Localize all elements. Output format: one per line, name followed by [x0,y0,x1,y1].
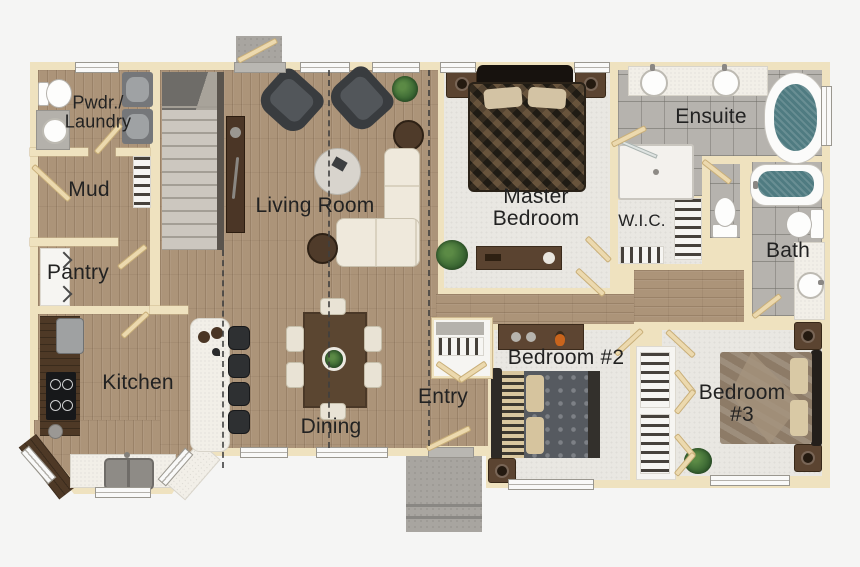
nightstand [794,444,822,472]
kitchen-island [190,318,230,452]
cooktop-icon [46,372,76,420]
dining-table [303,312,367,408]
toilet-icon [810,209,824,239]
pillow [790,358,808,394]
stair-rail [217,72,224,250]
dining-chair [286,362,304,388]
bar-stool [228,382,250,406]
stair-landing [162,72,224,110]
sink-icon [797,272,824,299]
room-label-dining: Dining [301,416,362,438]
bar-stool [228,326,250,350]
sink-icon [640,69,668,97]
room-label-wic: W.I.C. [618,212,665,230]
window [240,447,288,458]
sofa-sectional [336,218,420,267]
bar-stool [228,354,250,378]
dining-chair [286,326,304,352]
fridge-icon [56,318,84,354]
closet-rod [438,337,484,356]
island-faucet-icon [212,348,220,356]
mud-closet [133,156,151,208]
closet-rod [640,352,670,408]
faucet-icon [753,181,758,189]
bathtub-freestanding [764,72,828,164]
side-table [393,120,424,151]
faucet-icon [722,64,727,71]
room-label-living: Living Room [256,195,375,217]
entry-closet-shelf [436,322,484,335]
kitchen-sink-icon [104,458,154,490]
pillow [483,86,523,109]
bedroom2-bed [502,371,600,458]
staircase [162,72,224,250]
nightstand [794,322,822,350]
wall-mud-pantry [30,238,118,246]
room-label-mud: Mud [68,179,109,201]
room-label-kitchen: Kitchen [102,372,173,394]
ottoman [314,148,361,195]
window [316,447,388,458]
dashed-line [328,70,330,448]
sink-icon [712,69,740,97]
porch-step [406,516,482,519]
master-bench [476,246,562,270]
shower [618,144,694,200]
dining-chair [364,326,382,352]
plant-icon [392,76,418,102]
pillow [790,400,808,436]
decor-icon [555,331,565,346]
bedroom3-bed-headboard [811,350,822,446]
porch-step [406,504,482,507]
dining-chair [320,298,346,315]
window [75,62,119,73]
pillow [526,417,544,454]
window [821,86,832,146]
lamp-icon [230,127,241,138]
stair-treads [162,106,224,250]
faucet-icon [124,452,130,458]
window [440,62,476,73]
front-door-threshold [428,447,474,458]
room-label-master: MasterBedroom [493,186,580,230]
wic-closet-rod [674,198,702,260]
prep-sink-icon [48,424,63,439]
window [300,62,350,73]
entry-porch [406,452,482,532]
hallway-bath-floor [634,270,744,322]
wall-pantry-kitchen [150,306,188,314]
window [372,62,420,73]
window [508,479,594,490]
window [574,62,610,73]
room-label-bedroom2: Bedroom #2 [508,347,624,369]
patio-door-threshold [234,62,286,73]
toilet-icon [786,211,812,238]
console-table [226,116,245,233]
master-bed [468,82,586,192]
bedroom2-bed-headboard [491,368,502,460]
closet-rod [640,414,670,474]
floor-plan: Pwdr./Laundry Mud Pantry Kitchen Living … [0,0,860,567]
faucet-icon [650,64,655,71]
plant-icon [436,240,468,270]
pillow [527,87,566,110]
room-label-entry: Entry [418,386,468,408]
wic-shelf [620,246,664,264]
bathtub [750,164,824,206]
window [95,487,151,498]
window [710,475,790,486]
island-bowl-icon [198,331,210,343]
side-table [307,233,338,264]
room-label-pantry: Pantry [47,262,109,284]
dining-chair [364,362,382,388]
faucet-icon [818,280,824,285]
wall-pwdr-mud-2 [116,148,150,156]
pillow [526,375,544,412]
dashed-line [222,250,224,468]
bar-stool [228,410,250,434]
toilet-icon [714,197,736,227]
room-label-pwdr-laundry: Pwdr./Laundry [65,93,131,130]
room-label-ensuite: Ensuite [675,106,746,128]
room-label-bedroom3: Bedroom#3 [699,382,786,426]
room-label-bath: Bath [766,240,810,262]
